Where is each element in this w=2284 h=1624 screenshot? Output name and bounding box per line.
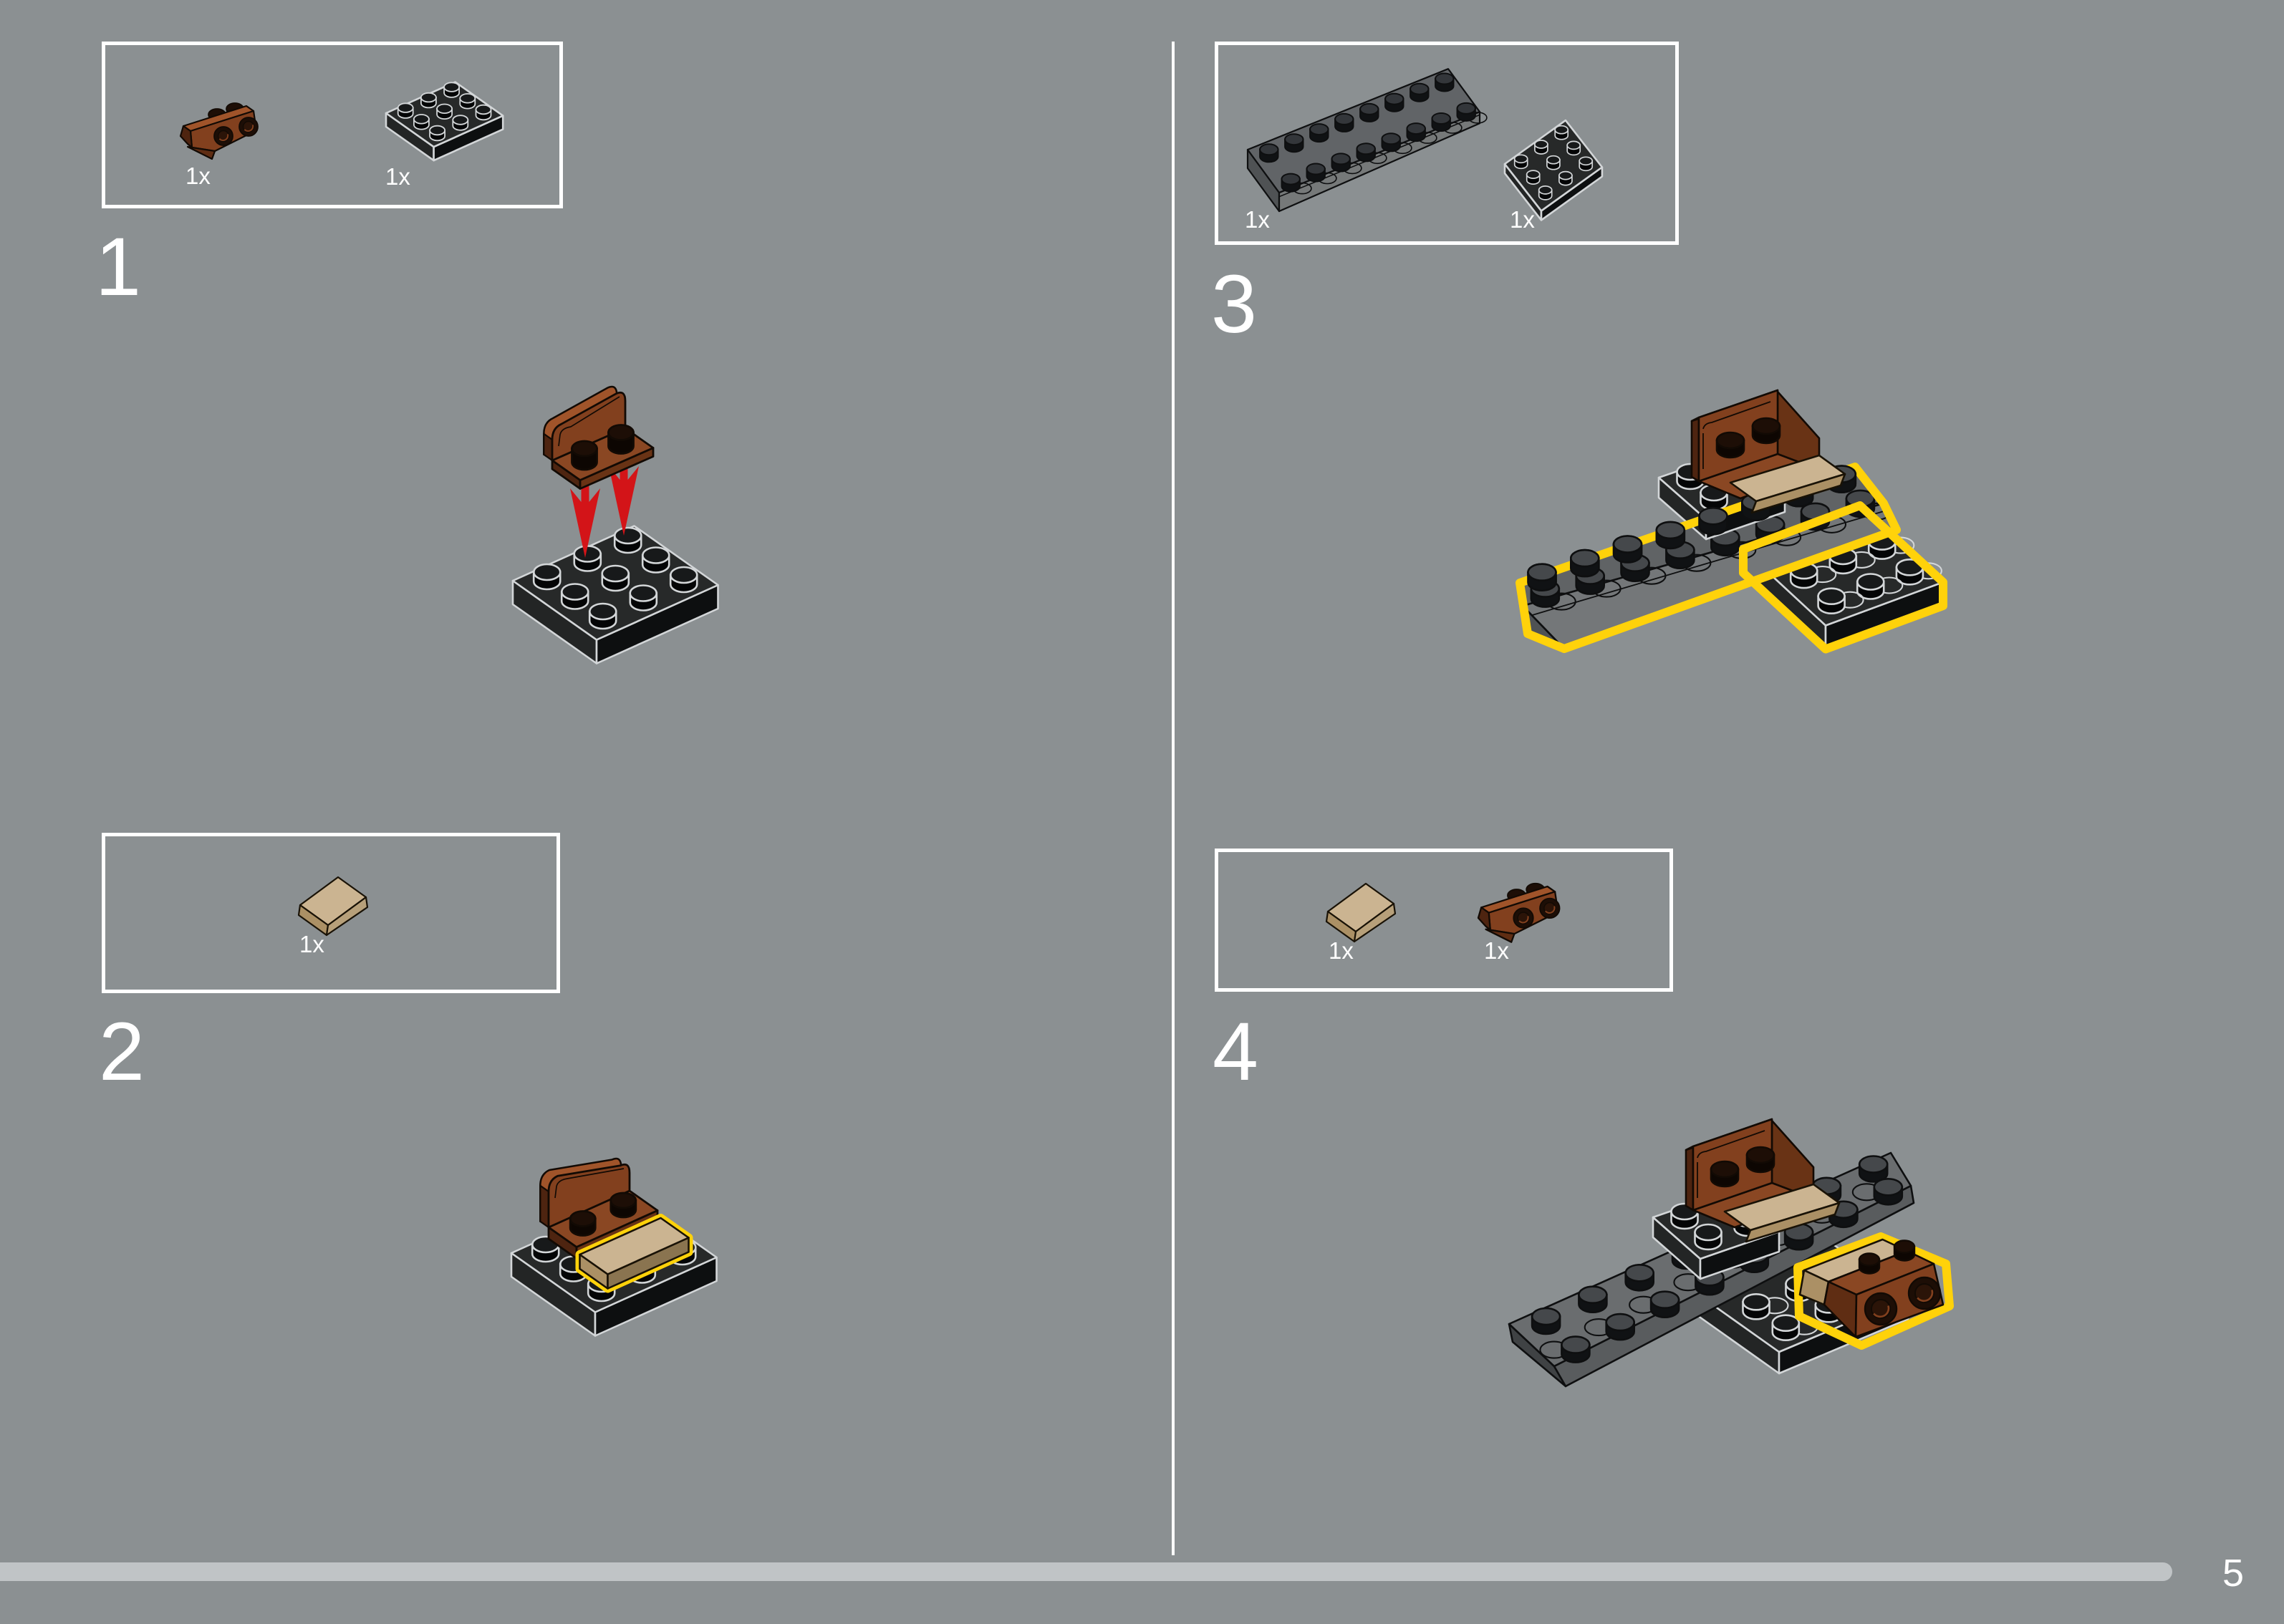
svg-text:5: 5 [2222,1552,2244,1595]
svg-text:1x: 1x [299,931,324,957]
svg-text:3: 3 [1211,258,1257,350]
svg-text:1x: 1x [1510,206,1535,233]
svg-text:1x: 1x [185,163,211,189]
svg-text:1x: 1x [385,163,410,190]
svg-text:1x: 1x [1484,937,1509,964]
svg-text:1x: 1x [1245,206,1270,233]
svg-text:1x: 1x [1329,937,1354,964]
svg-text:4: 4 [1213,1006,1258,1098]
svg-text:1: 1 [95,221,141,313]
svg-text:2: 2 [99,1006,145,1098]
